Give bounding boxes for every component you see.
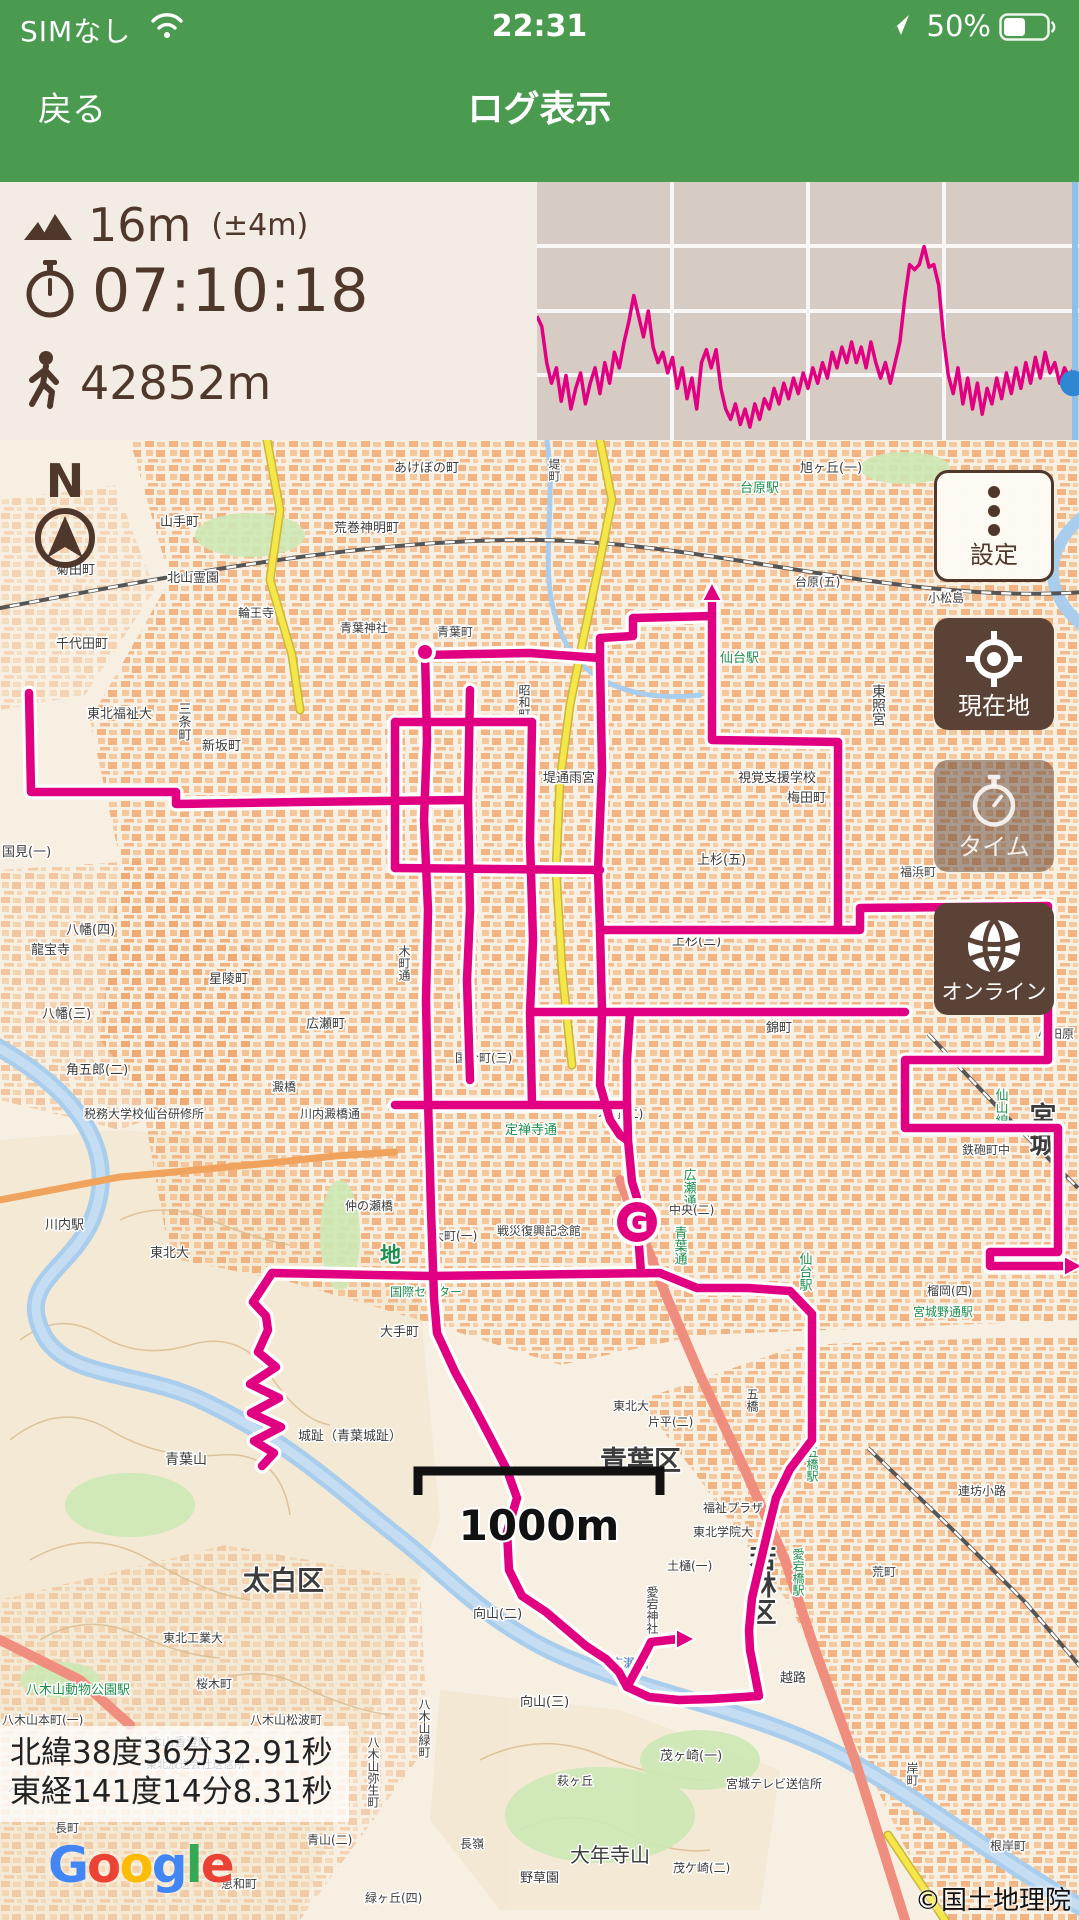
altitude-value: 16m (88, 198, 191, 252)
google-logo-letter: e (201, 1836, 233, 1894)
settings-button[interactable]: 設定 (934, 470, 1054, 582)
map-label: 八木山松波町 (250, 1713, 322, 1727)
chart-grid (537, 182, 1079, 440)
google-logo-letter: o (87, 1836, 119, 1894)
map-label: 愛宕神社 (645, 1586, 659, 1634)
map-label: 越路 (780, 1670, 806, 1686)
map-label: 戦災復興記念館 (497, 1223, 581, 1238)
map-label: 茂ヶ崎(一) (660, 1749, 722, 1764)
map-label: 宮城野通駅 (913, 1304, 973, 1319)
map-label: 八幡(四) (66, 923, 115, 938)
map-label: 台原駅 (740, 481, 779, 496)
google-logo-letter: G (48, 1836, 87, 1894)
clock: 22:31 (0, 9, 1079, 44)
longitude-value: 東経141度14分8.31秒 (10, 1773, 333, 1812)
map-label: 定禅寺通 (505, 1123, 557, 1138)
map-label: 野草園 (520, 1871, 559, 1886)
map-label: 福浜町 (900, 864, 936, 879)
map-label: 台原(五) (795, 574, 840, 589)
north-compass[interactable]: N (28, 458, 102, 576)
map-label: 東北工業大 (163, 1631, 223, 1645)
map-viewport[interactable]: あけぼの町旭ヶ丘(一)台原駅堤町山手町荒巻神明町菊田町北山霊園台原(五)小松島輪… (0, 440, 1079, 1920)
duration-value: 07:10:18 (92, 256, 369, 326)
altitude-row: 16m (±4m) (22, 198, 308, 252)
map-label: 旭ヶ丘(一) (800, 461, 862, 476)
duration-row: 07:10:18 (22, 256, 369, 326)
latitude-value: 北緯38度36分32.91秒 (10, 1734, 333, 1773)
map-label: 広瀬通 (681, 1168, 697, 1207)
map-label: 仲の瀬橋 (345, 1199, 393, 1213)
map-label: 地 (380, 1243, 401, 1267)
location-services-icon (887, 13, 911, 41)
map-label: 向山(二) (473, 1606, 522, 1622)
north-label: N (28, 458, 102, 504)
app-screen: SIMなし 22:31 50% 戻る (0, 0, 1079, 1920)
time-label: タイム (958, 835, 1030, 859)
distance-row: 42852m (22, 350, 271, 416)
map-label: 青葉山 (165, 1452, 207, 1468)
map-label: 青葉神社 (340, 620, 388, 635)
map-label: 東北福祉大 (87, 706, 152, 722)
map-label: 川内澱橋通 (300, 1107, 360, 1121)
nav-bar: 戻る ログ表示 (0, 70, 1079, 140)
walker-icon (22, 350, 66, 416)
map-label: 連坊小路 (958, 1483, 1006, 1498)
map-label: 八木山弥生町 (366, 1736, 380, 1808)
map-label: 長嶺 (460, 1837, 484, 1851)
route-segment (639, 1246, 641, 1273)
route-start-dot (418, 645, 432, 659)
map-label: 大年寺山 (570, 1843, 650, 1867)
time-button[interactable]: タイム (934, 760, 1054, 872)
map-label: 片平(二) (648, 1415, 693, 1429)
map-label: 緑ヶ丘(四) (365, 1890, 422, 1905)
map-label: 青山(二) (307, 1833, 352, 1847)
map-label: 八木山緑町 (417, 1698, 431, 1758)
map-label: 千代田町 (56, 637, 108, 652)
map-label: 北山霊園 (167, 571, 219, 586)
map-label: 中央(二) (669, 1202, 714, 1217)
online-button[interactable]: オンライン (934, 903, 1054, 1015)
map-label: 東北大 (613, 1399, 649, 1413)
map-label: 青葉通 (672, 1226, 688, 1265)
route-segment (395, 868, 600, 870)
map-label: 長町 (55, 1821, 79, 1835)
map-label: 向山(三) (520, 1694, 569, 1710)
target-icon (965, 630, 1023, 688)
map-label: 澱橋 (272, 1080, 296, 1094)
battery-icon (999, 13, 1057, 45)
google-logo-letter: g (152, 1836, 186, 1894)
map-label: 榴岡(四) (927, 1284, 972, 1298)
map-label: 税務大学校仙台研修所 (84, 1106, 204, 1121)
map-label: 鉄砲町中 (962, 1142, 1010, 1157)
map-label: 八木山動物公園駅 (26, 1683, 130, 1698)
google-logo-letter: o (119, 1836, 151, 1894)
distance-value: 42852m (80, 356, 271, 410)
map-label: 東北大 (150, 1245, 189, 1261)
goal-marker-label: G (626, 1206, 649, 1239)
scale-bar-label: 1000m (459, 1501, 620, 1550)
current-location-button[interactable]: 現在地 (934, 618, 1054, 730)
map-label: 堤町 (547, 458, 561, 482)
stopwatch-icon (968, 773, 1020, 829)
map-label: 青葉町 (437, 625, 473, 639)
map-label: 福祉プラザ (703, 1500, 763, 1515)
map-label: 根岸町 (990, 1839, 1026, 1853)
map-label: 荒町 (872, 1565, 896, 1579)
map-label: 宮城テレビ送信所 (726, 1776, 822, 1791)
map-label: 小松島 (928, 590, 964, 605)
mountain-icon (22, 200, 74, 250)
route-segment (530, 722, 533, 1105)
map-label: 山手町 (160, 515, 199, 530)
map-label: 国際センター (390, 1285, 462, 1299)
map-label: 八木山本町(一) (2, 1713, 83, 1727)
map-label: 桜木町 (196, 1677, 232, 1691)
stats-panel: 16m (±4m) 07:10:18 42852m (0, 182, 537, 440)
compass-icon (31, 504, 99, 572)
map-label: 岸町 (905, 1762, 919, 1786)
altitude-accuracy: (±4m) (211, 208, 308, 243)
map-label: 土樋(一) (667, 1558, 712, 1573)
top-bar: SIMなし 22:31 50% 戻る (0, 0, 1079, 182)
map-label: 広瀬町 (306, 1017, 345, 1032)
route-segment (425, 653, 600, 658)
map-label: 星陵町 (209, 972, 248, 987)
gsi-attribution: ©国土地理院 (915, 1880, 1071, 1917)
map-label: 三条町 (176, 702, 192, 741)
map-label: 龍宝寺 (31, 942, 70, 958)
map-label: 国見(一) (2, 845, 51, 860)
map-label: 太白区 (243, 1565, 324, 1597)
map-label: 川内駅 (45, 1217, 84, 1233)
map-label: 木町通 (397, 945, 411, 981)
map-label: 角五郎(二) (66, 1063, 128, 1078)
map-label: 仙台駅 (797, 1252, 813, 1292)
map-label: 荒巻神明町 (334, 521, 399, 536)
map-label: 茂ケ崎(二) (673, 1861, 730, 1875)
map-label: 上杉(五) (697, 853, 746, 868)
map-label: 萩ヶ丘 (557, 1774, 593, 1788)
map-label: あけぼの町 (394, 461, 459, 476)
map-label: 東照宮 (870, 684, 886, 726)
elevation-chart[interactable] (537, 182, 1079, 440)
map-label: 輪王寺 (238, 605, 274, 620)
map-label: 錦町 (766, 1020, 792, 1036)
page-title: ログ表示 (0, 80, 1079, 132)
google-logo: Google (48, 1836, 233, 1894)
stopwatch-icon (22, 258, 78, 324)
ellipsis-icon (987, 485, 1001, 537)
map-label: 愛宕橋駅 (791, 1548, 805, 1597)
map-label: 視覚支援学校 (738, 770, 816, 786)
map-label: 梅田町 (787, 791, 826, 806)
battery-percent: 50% (927, 9, 991, 43)
route-segment (467, 690, 470, 1080)
map-label: 八幡(三) (42, 1007, 91, 1022)
map-label: 東北学院大 (693, 1524, 753, 1539)
map-label: 大手町 (380, 1325, 419, 1340)
online-label: オンライン (942, 982, 1047, 1003)
coordinates-overlay: 北緯38度36分32.91秒 東経141度14分8.31秒 (0, 1726, 349, 1822)
globe-icon (964, 916, 1024, 976)
map-label: 五橋 (745, 1388, 759, 1413)
current-location-label: 現在地 (958, 694, 1030, 718)
settings-label: 設定 (970, 543, 1018, 567)
map-label: 城趾（青葉城趾） (298, 1429, 402, 1444)
status-bar: SIMなし 22:31 50% (0, 0, 1079, 52)
map-label: 新坂町 (202, 738, 241, 754)
google-logo-letter: l (186, 1836, 201, 1894)
